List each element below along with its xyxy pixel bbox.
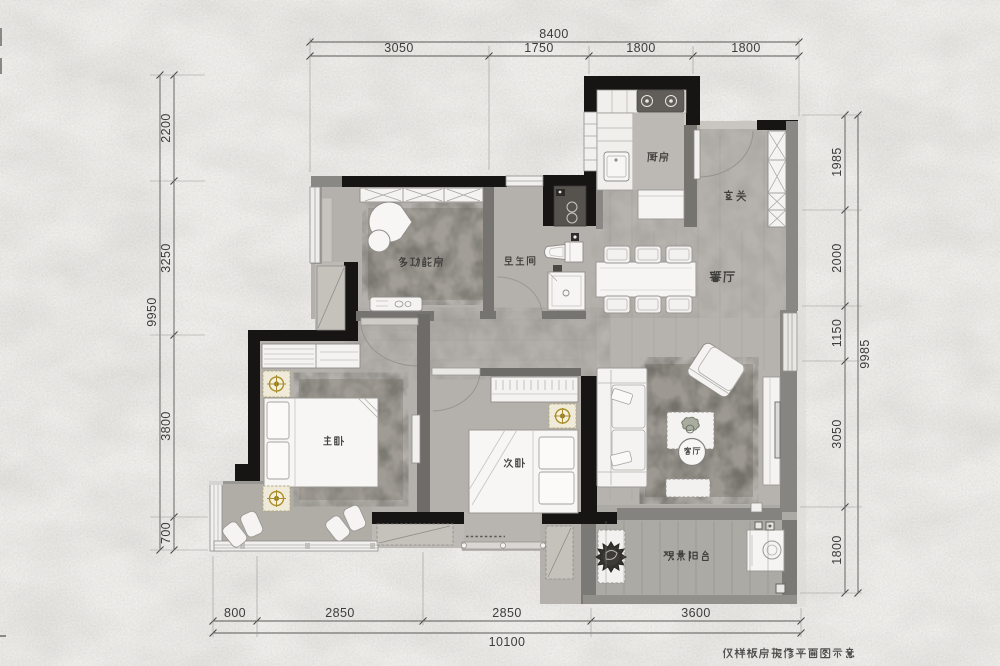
svg-text:800: 800 — [224, 606, 246, 620]
svg-text:2850: 2850 — [325, 606, 354, 620]
svg-text:8400: 8400 — [539, 27, 568, 41]
svg-text:1800: 1800 — [731, 41, 760, 55]
svg-text:10100: 10100 — [489, 635, 526, 649]
svg-text:1150: 1150 — [830, 319, 844, 347]
svg-text:2200: 2200 — [159, 113, 173, 142]
svg-text:3600: 3600 — [681, 606, 710, 620]
svg-text:3800: 3800 — [159, 411, 173, 440]
svg-text:9985: 9985 — [858, 339, 872, 368]
svg-text:1985: 1985 — [830, 147, 844, 176]
svg-text:1800: 1800 — [626, 41, 655, 55]
svg-text:3250: 3250 — [159, 243, 173, 272]
svg-text:2000: 2000 — [830, 243, 844, 272]
svg-text:700: 700 — [159, 522, 173, 544]
svg-text:3050: 3050 — [830, 419, 844, 448]
svg-text:1800: 1800 — [830, 535, 844, 564]
svg-text:2850: 2850 — [492, 606, 521, 620]
svg-text:9950: 9950 — [145, 297, 159, 326]
svg-text:1750: 1750 — [524, 41, 553, 55]
svg-text:3050: 3050 — [384, 41, 413, 55]
